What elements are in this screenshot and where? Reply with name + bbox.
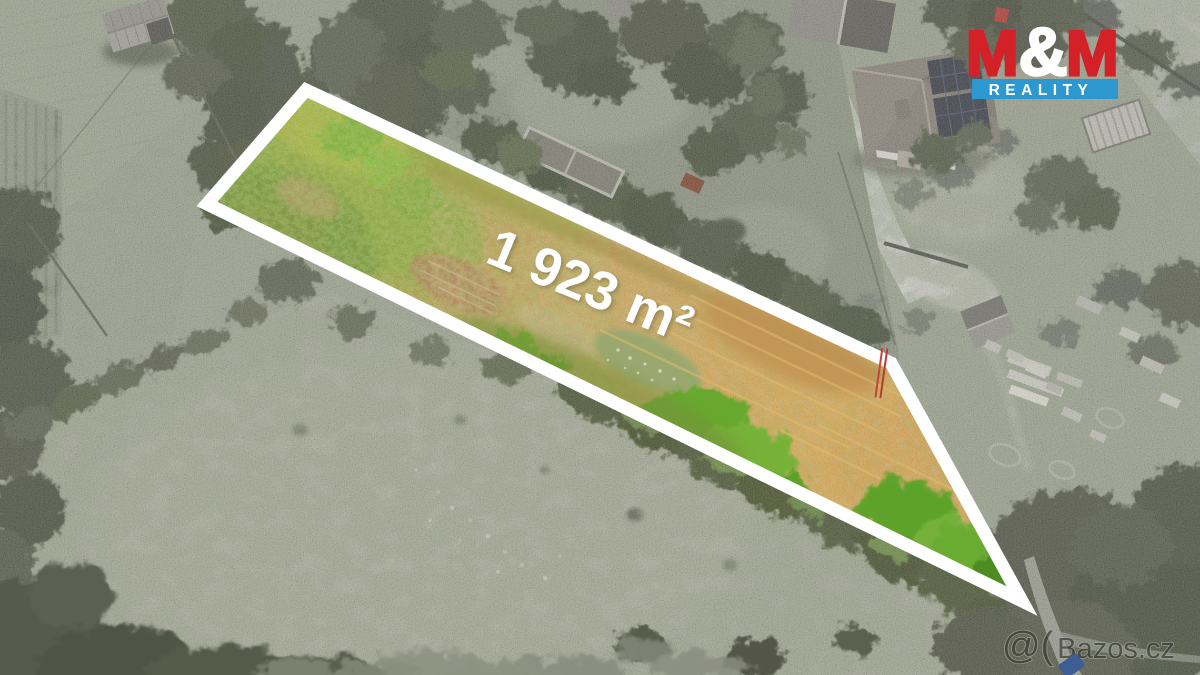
svg-text:REALITY: REALITY [989,82,1094,99]
svg-text:M: M [966,19,1018,89]
svg-text:&: & [1018,14,1067,90]
svg-text:M: M [1066,19,1118,89]
